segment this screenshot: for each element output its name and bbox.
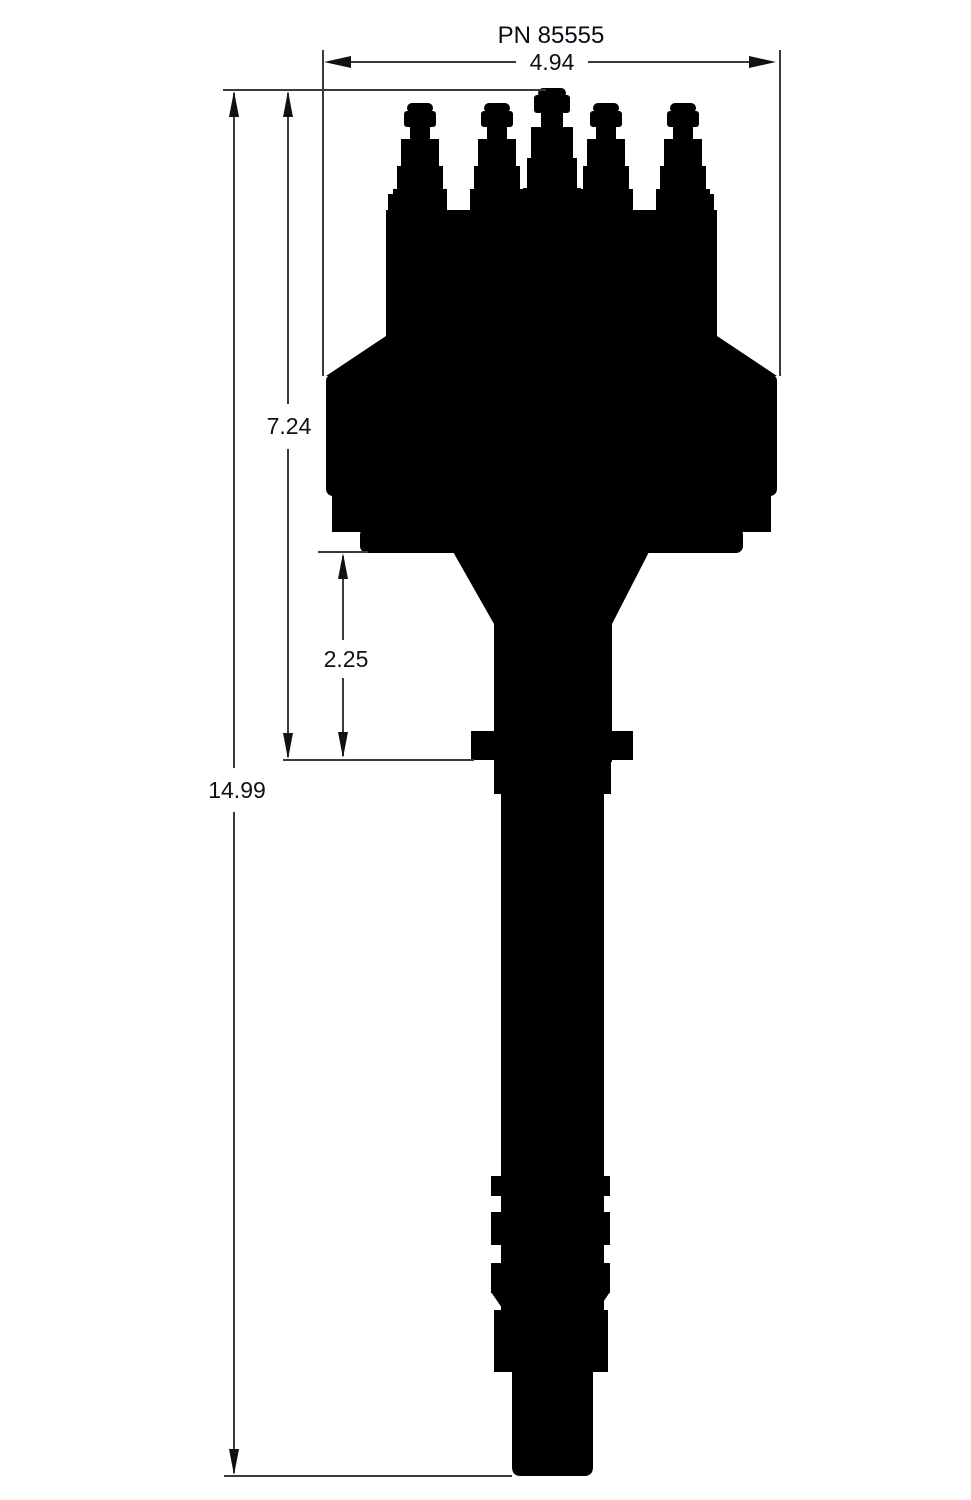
ribbed-lower-section bbox=[491, 1176, 610, 1312]
part-number-label: PN 85555 bbox=[498, 22, 605, 49]
housing-flange bbox=[326, 374, 777, 553]
shaft bbox=[494, 760, 611, 1178]
cap-terminal-tower-4 bbox=[579, 103, 633, 217]
arrow-up-icon bbox=[229, 91, 239, 117]
hold-down-collar bbox=[471, 731, 633, 760]
distributor-cap-body bbox=[326, 194, 777, 376]
arrow-right-icon bbox=[749, 56, 776, 68]
cap-terminal-tower-center bbox=[523, 88, 581, 218]
distributor-silhouette bbox=[326, 88, 777, 1476]
arrow-left-icon bbox=[324, 56, 351, 68]
arrow-up-icon bbox=[338, 553, 348, 579]
dim-overall-height: 14.99 bbox=[208, 91, 266, 1475]
arrow-down-icon bbox=[338, 732, 348, 758]
arrow-down-icon bbox=[229, 1449, 239, 1475]
dim-overall-width: 4.94 bbox=[324, 49, 776, 75]
shaft-tip bbox=[512, 1372, 593, 1476]
dim-lower-housing-height: 2.25 bbox=[324, 553, 369, 758]
drawing-canvas: 4.94 7.24 2.25 14.99 PN 85555 bbox=[0, 0, 971, 1500]
distributor-dimension-diagram: 4.94 7.24 2.25 14.99 PN 85555 bbox=[0, 0, 971, 1500]
dim-upper-height: 7.24 bbox=[267, 91, 312, 759]
arrow-up-icon bbox=[283, 91, 293, 117]
dim-overall-height-value: 14.99 bbox=[208, 777, 266, 803]
drive-gear bbox=[494, 1310, 608, 1372]
housing-neck bbox=[452, 550, 650, 762]
dim-width-value: 4.94 bbox=[530, 49, 575, 75]
arrow-down-icon bbox=[283, 733, 293, 759]
dim-upper-height-value: 7.24 bbox=[267, 413, 312, 439]
dim-lower-housing-value: 2.25 bbox=[324, 646, 369, 672]
cap-terminal-tower-2 bbox=[470, 103, 524, 217]
